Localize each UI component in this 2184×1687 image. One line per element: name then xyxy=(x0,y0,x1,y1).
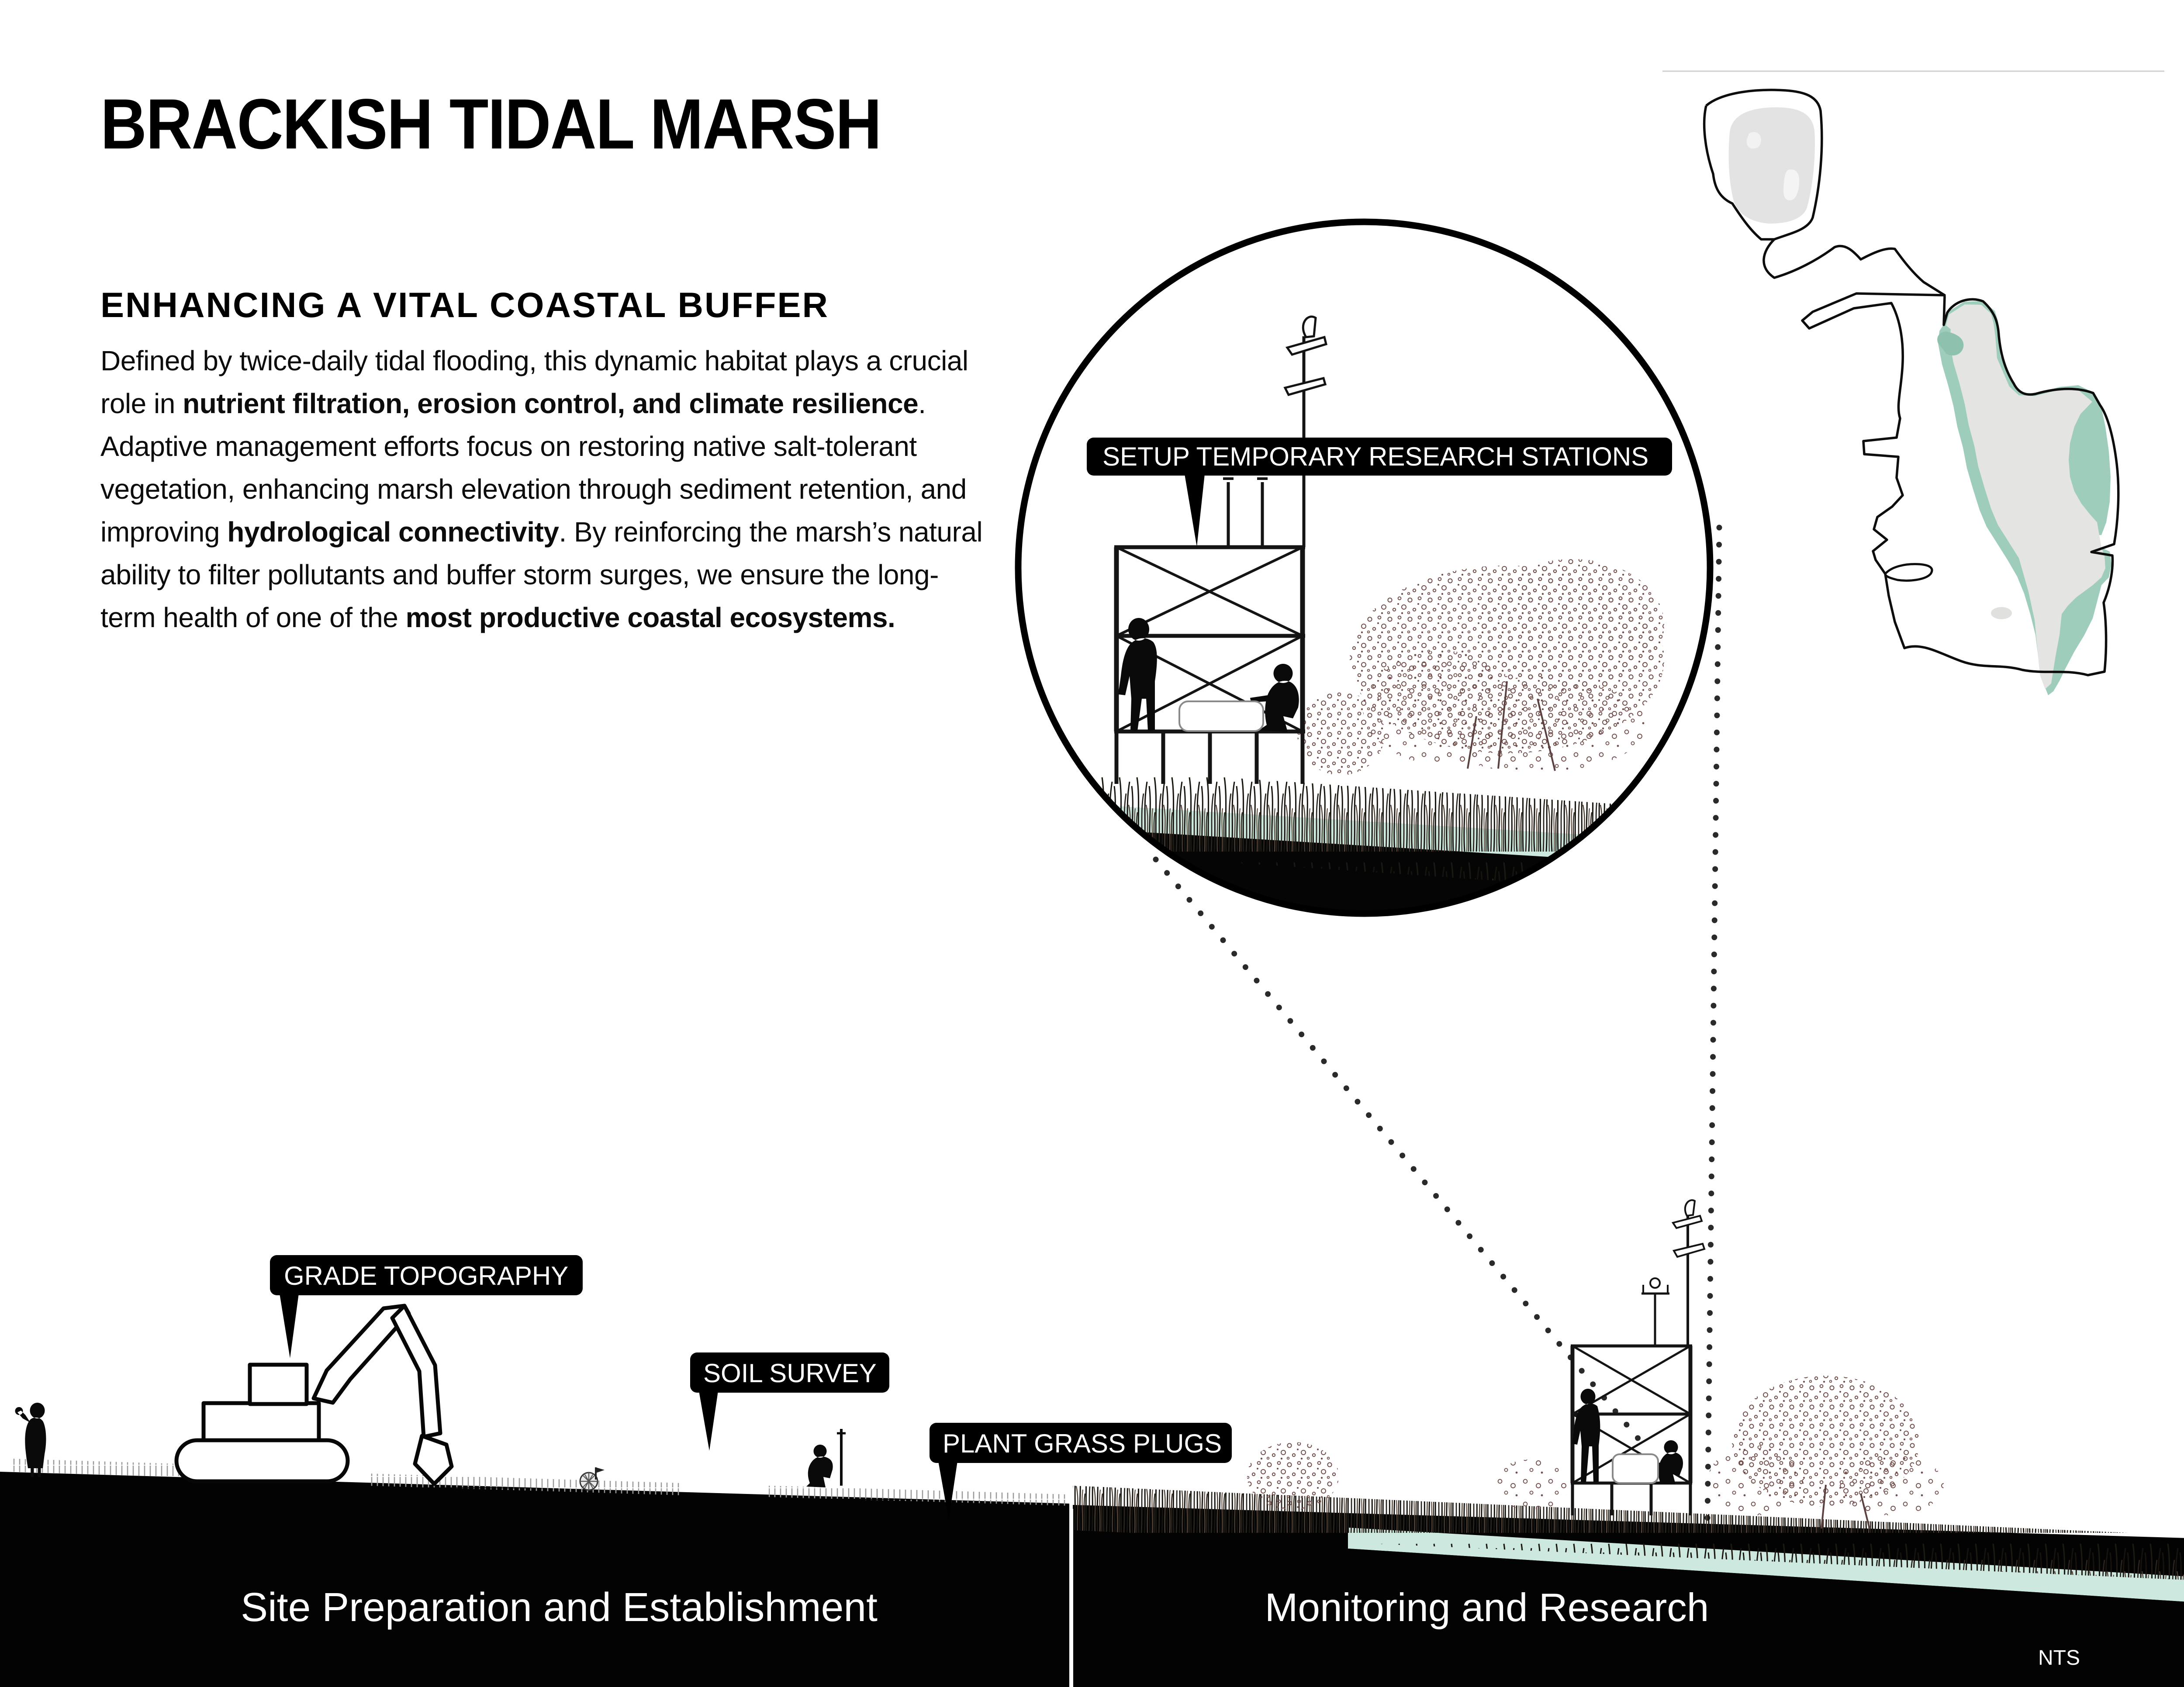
svg-text:GRADE TOPOGRAPHY: GRADE TOPOGRAPHY xyxy=(284,1261,568,1290)
svg-text:Site Preparation and Establish: Site Preparation and Establishment xyxy=(241,1584,878,1630)
svg-text:Monitoring and Research: Monitoring and Research xyxy=(1265,1586,1709,1630)
svg-text:SOIL SURVEY: SOIL SURVEY xyxy=(703,1359,877,1388)
svg-text:SETUP TEMPORARY RESEARCH STATI: SETUP TEMPORARY RESEARCH STATIONS xyxy=(1102,442,1648,471)
svg-text:PLANT GRASS PLUGS: PLANT GRASS PLUGS xyxy=(943,1429,1222,1458)
svg-text:NTS: NTS xyxy=(2038,1646,2080,1670)
